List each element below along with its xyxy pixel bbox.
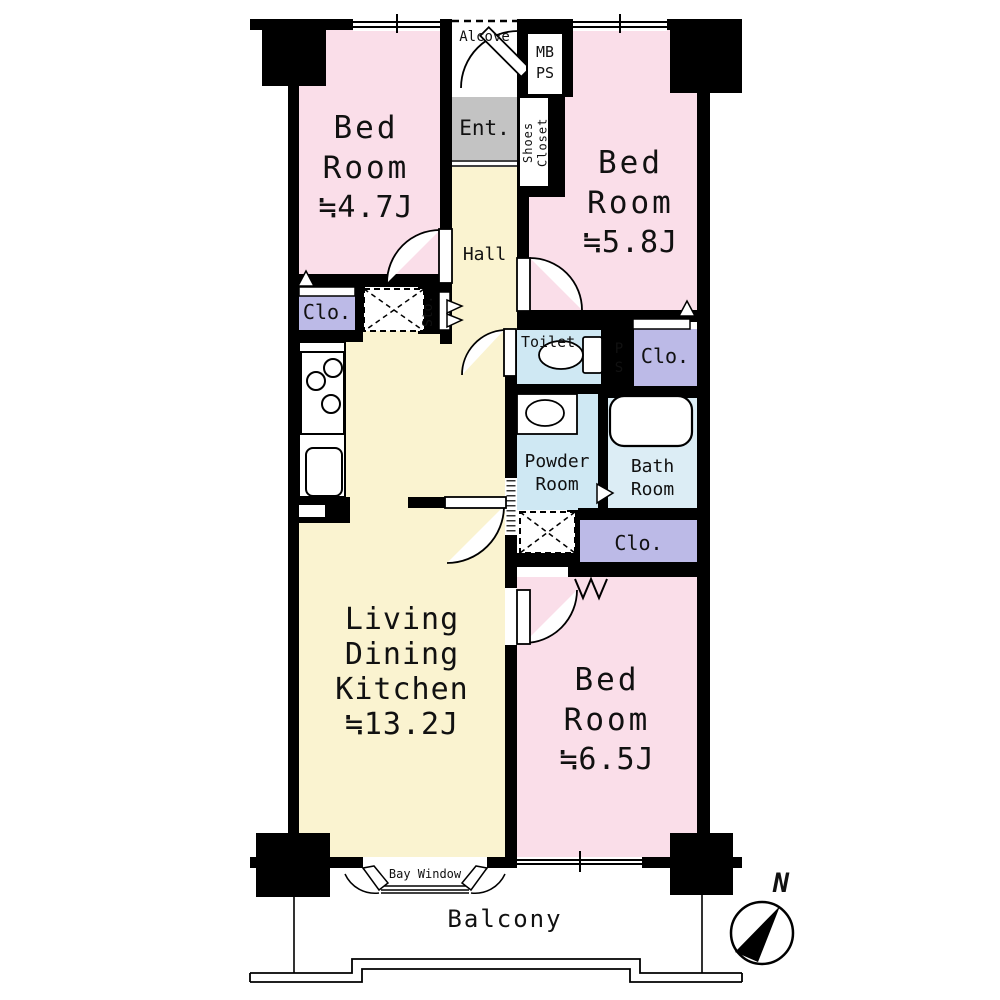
fixtures-overlay — [0, 0, 1000, 1000]
bedroom2-size: ≒5.8J — [558, 223, 703, 263]
powder-label-line2: Room — [515, 473, 599, 496]
floor-plan: Bed Room ≒4.7J Bed Room ≒5.8J Bed Room ≒… — [0, 0, 1000, 1000]
bedroom3-size: ≒6.5J — [531, 740, 683, 780]
bedroom2-door-icon — [517, 258, 582, 311]
bedroom1-label: Bed Room ≒4.7J — [292, 108, 440, 228]
compass-icon — [731, 902, 793, 964]
mbps-label-line1: MB — [527, 42, 563, 63]
powder-label-line1: Powder — [515, 450, 599, 473]
ldk-name-line2: Dining — [308, 637, 496, 672]
closet-upper-left-door-icon — [298, 271, 355, 296]
window-bedroom1-top-icon — [353, 14, 440, 33]
powder-label: Powder Room — [515, 450, 599, 496]
window-bedroom2-top-icon — [573, 14, 667, 33]
window-bedroom3-bottom-icon — [517, 851, 642, 872]
ps-label-line1: P — [608, 340, 630, 359]
compass-north-label: N — [766, 868, 796, 900]
kitchen-step-notch — [299, 505, 325, 517]
entrance-label: Ent. — [452, 116, 517, 141]
bay-window-label: Bay Window — [380, 867, 470, 881]
toilet-door-icon — [462, 329, 516, 376]
storage-door-icon — [439, 292, 462, 330]
bedroom2-label: Bed Room ≒5.8J — [558, 143, 703, 263]
ldk-label: Living Dining Kitchen ≒13.2J — [308, 602, 496, 742]
bedroom1-name-line2: Room — [292, 148, 440, 188]
kitchen-counter-icon — [299, 342, 345, 497]
closet-upper-right-label: Clo. — [633, 344, 697, 368]
ldk-name-line1: Living — [308, 602, 496, 637]
alcove-label: Alcove — [452, 29, 517, 46]
bedroom3-name-line2: Room — [531, 700, 683, 740]
washer-space-icon — [520, 512, 575, 553]
bedroom1-size: ≒4.7J — [292, 188, 440, 228]
closet-lower-fold-icon — [575, 579, 607, 598]
bedroom3-name-line1: Bed — [531, 660, 683, 700]
bedroom2-name-line1: Bed — [558, 143, 703, 183]
bedroom2-name-line2: Room — [558, 183, 703, 223]
ps-label-line2: S — [608, 359, 630, 378]
bathtub-icon — [610, 396, 692, 446]
shoes-closet-label: Shoes Closet — [521, 99, 547, 185]
bedroom1-name-line1: Bed — [292, 108, 440, 148]
mbps-label-line2: PS — [527, 63, 563, 84]
ldk-door-icon — [445, 497, 506, 563]
closet-lower-label: Clo. — [580, 531, 697, 555]
ldk-size: ≒13.2J — [308, 707, 496, 742]
closet-upper-left-label: Clo. — [299, 300, 355, 324]
storage-label: Sto. — [421, 293, 438, 329]
bedroom1-door-icon — [387, 229, 452, 283]
ldk-name-line3: Kitchen — [308, 672, 496, 707]
ps-label: P S — [608, 340, 630, 378]
entrance-step-line — [452, 160, 517, 167]
bedroom3-door-icon — [505, 588, 577, 645]
bath-label-line1: Bath — [608, 455, 697, 478]
mbps-label: MB PS — [527, 42, 563, 84]
bath-label: Bath Room — [608, 455, 697, 501]
closet-upper-right-door-icon — [633, 301, 695, 329]
toilet-label: Toilet — [518, 333, 581, 351]
powder-sink-icon — [517, 394, 577, 434]
balcony-label: Balcony — [425, 905, 585, 934]
bath-label-line2: Room — [608, 478, 697, 501]
fridge-space-icon — [364, 289, 424, 331]
bedroom3-label: Bed Room ≒6.5J — [531, 660, 683, 780]
hall-label: Hall — [452, 244, 517, 266]
